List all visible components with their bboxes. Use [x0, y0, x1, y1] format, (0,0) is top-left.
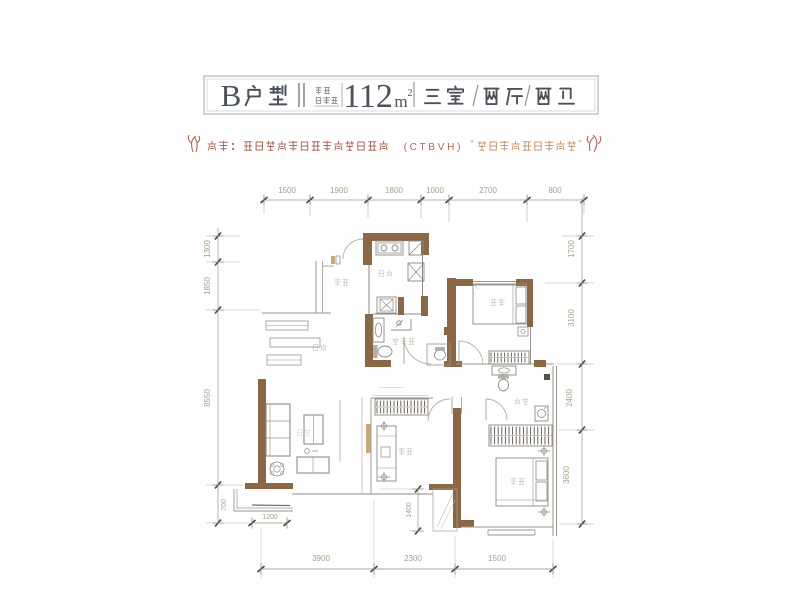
svg-text:3900: 3900: [312, 554, 330, 563]
svg-text:1200: 1200: [262, 514, 278, 521]
svg-text:1500: 1500: [278, 186, 296, 195]
svg-text:2700: 2700: [479, 186, 497, 195]
svg-text:2300: 2300: [404, 554, 422, 563]
svg-text:800: 800: [548, 186, 562, 195]
svg-text:112: 112: [343, 78, 393, 115]
svg-text:1900: 1900: [330, 186, 348, 195]
svg-text:2: 2: [408, 88, 413, 99]
svg-text:3600: 3600: [562, 466, 571, 484]
svg-text:1850: 1850: [203, 277, 212, 295]
svg-text:B: B: [221, 78, 242, 113]
svg-text:”: ”: [578, 139, 581, 150]
svg-text:1800: 1800: [385, 186, 403, 195]
svg-text:8550: 8550: [203, 389, 212, 407]
svg-text:( C T B V H ): ( C T B V H ): [404, 142, 461, 153]
svg-text:1400: 1400: [406, 502, 413, 518]
svg-text:1000: 1000: [426, 186, 444, 195]
svg-text:1500: 1500: [488, 554, 506, 563]
svg-text:“: “: [470, 139, 473, 150]
svg-text:1700: 1700: [567, 240, 576, 258]
svg-text:m: m: [394, 92, 407, 111]
svg-text:1300: 1300: [203, 240, 212, 258]
svg-text:3100: 3100: [567, 309, 576, 327]
svg-text:2400: 2400: [565, 389, 574, 407]
svg-text:700: 700: [221, 499, 228, 511]
